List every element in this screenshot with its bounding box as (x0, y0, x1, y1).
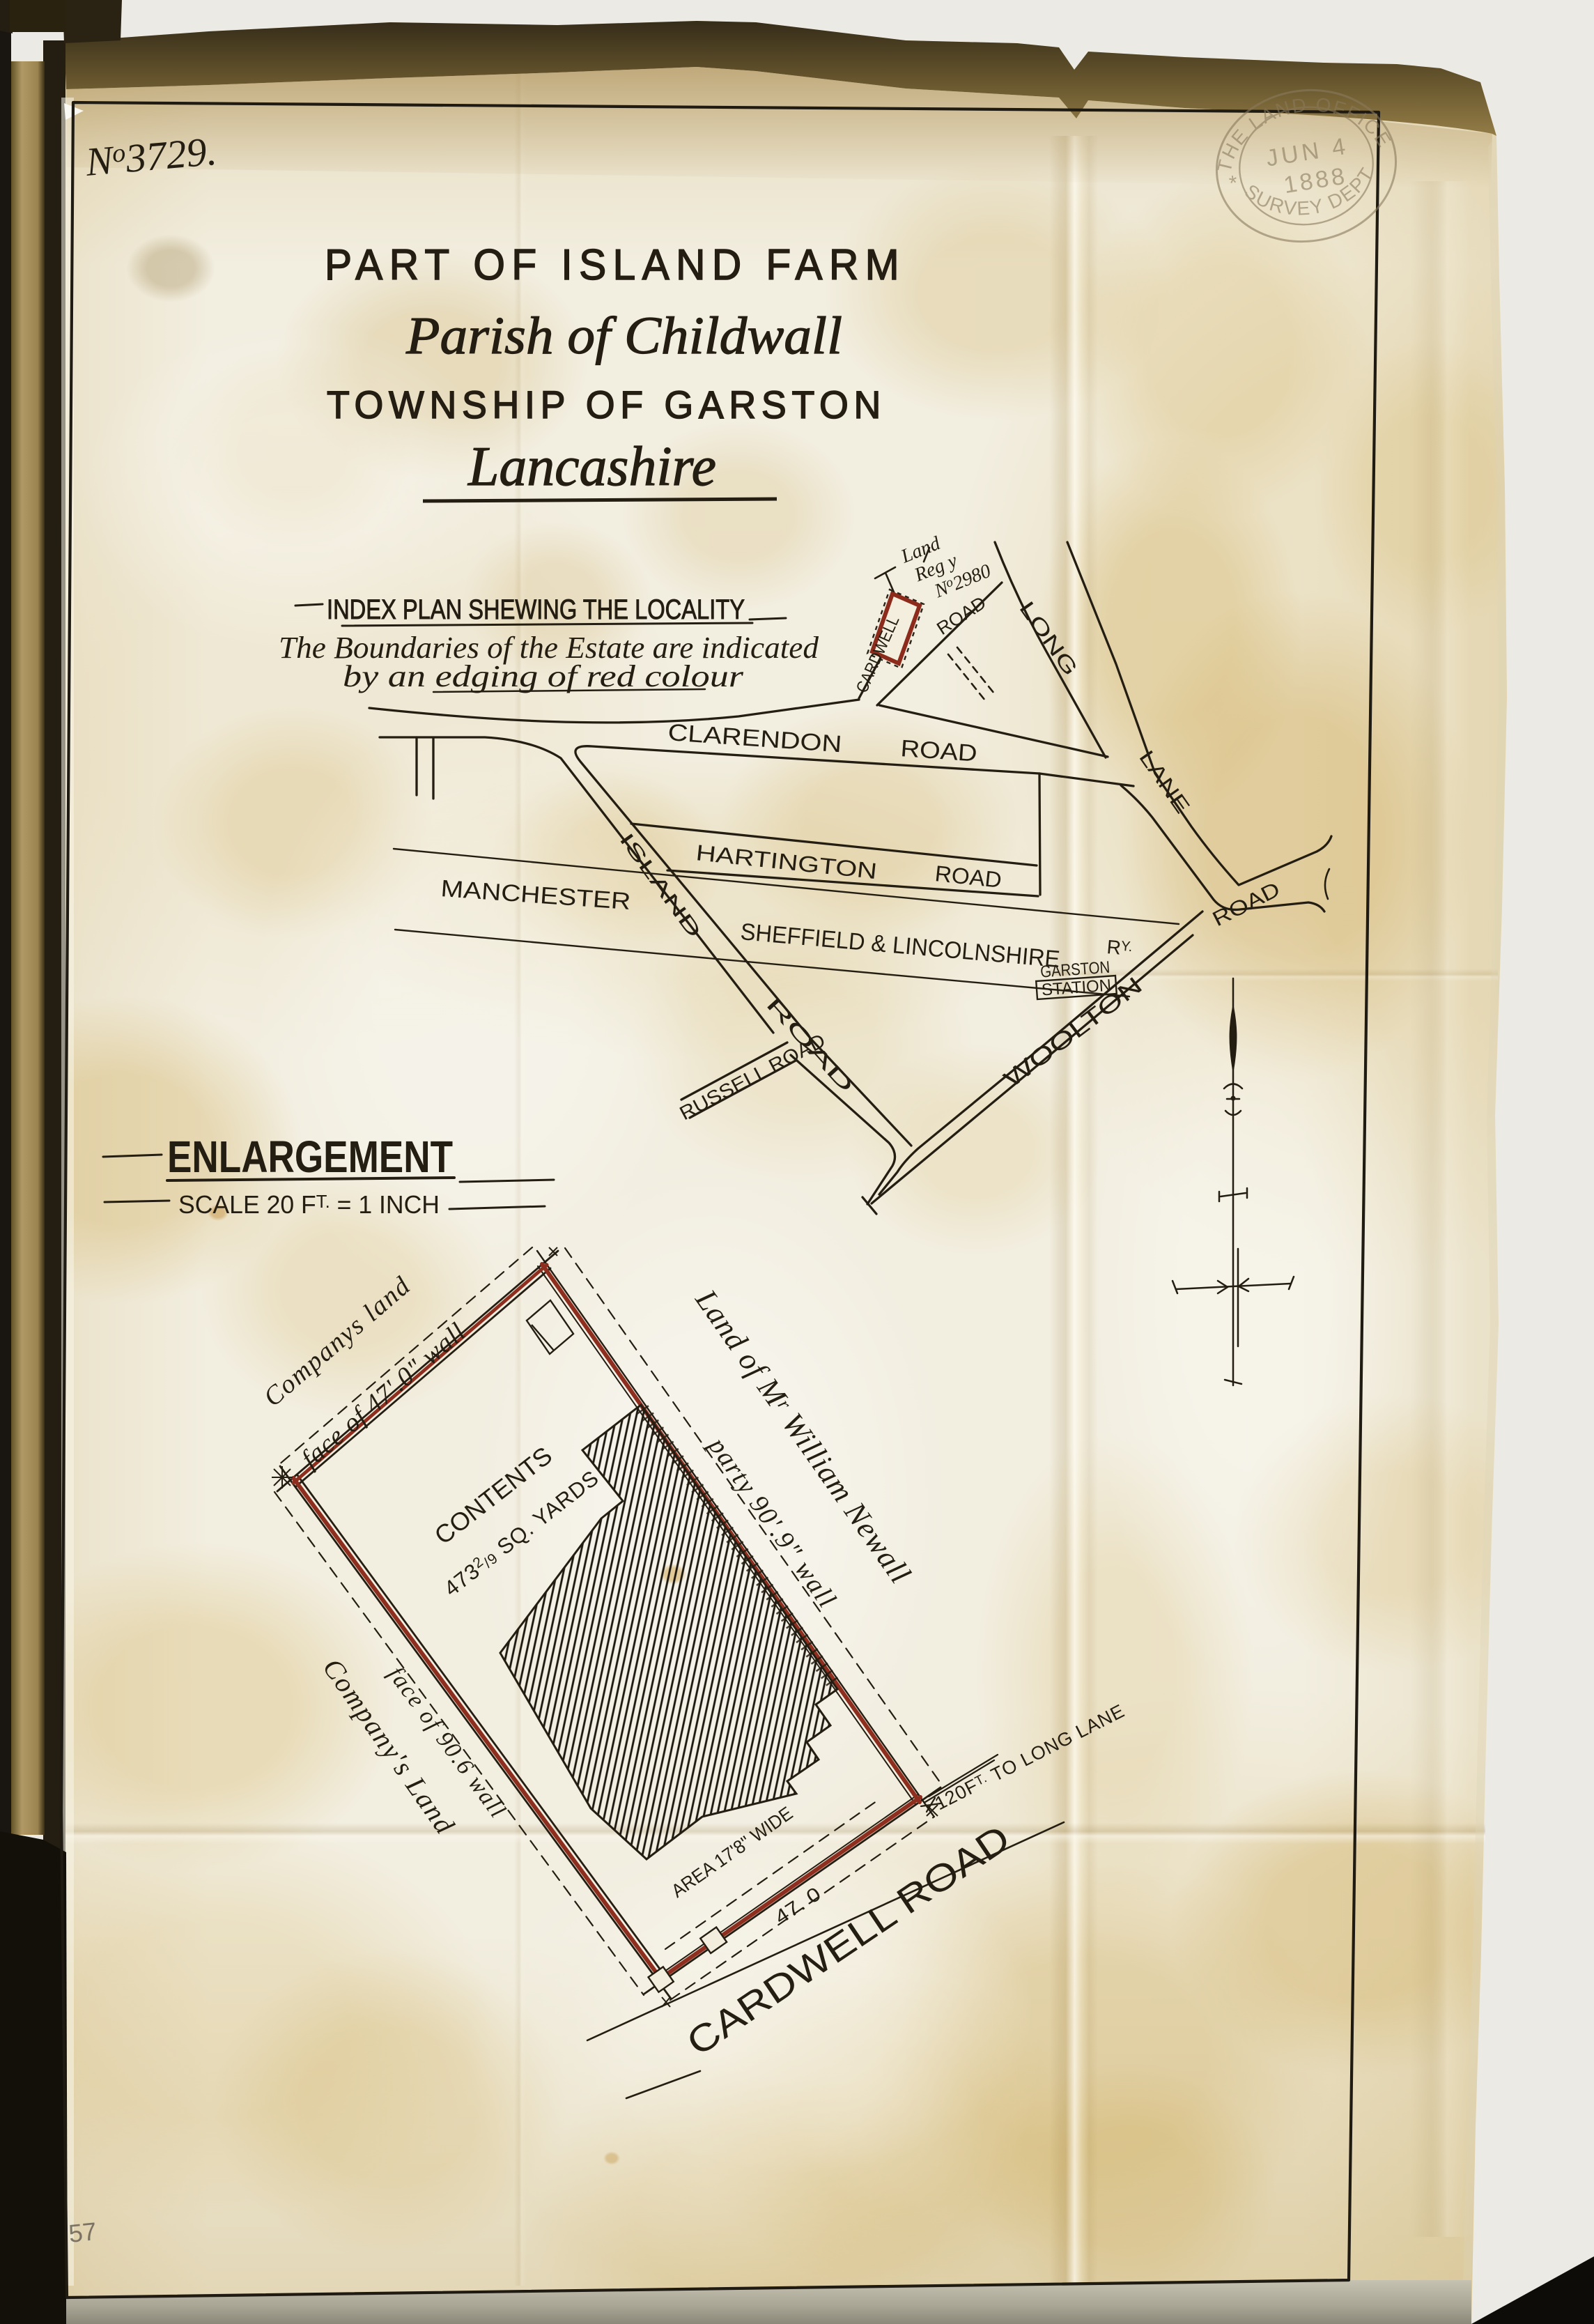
svg-text:ISLAND: ISLAND (615, 829, 706, 941)
svg-text:ROAD: ROAD (899, 735, 977, 767)
svg-text:PART OF ISLAND FARM: PART OF ISLAND FARM (325, 241, 906, 289)
svg-text:47. 0: 47. 0 (771, 1883, 824, 1928)
svg-text:TOWNSHIP OF GARSTON: TOWNSHIP OF GARSTON (327, 383, 886, 426)
svg-text:ROAD: ROAD (934, 861, 1003, 893)
svg-text:LONG: LONG (1014, 597, 1082, 680)
svg-text:*: * (1228, 171, 1239, 195)
svg-text:INDEX PLAN SHEWING THE LOCALIT: INDEX PLAN SHEWING THE LOCALITY (327, 594, 745, 625)
svg-text:MANCHESTER: MANCHESTER (440, 875, 631, 915)
svg-text:ROAD: ROAD (762, 993, 858, 1097)
svg-text:120FT. TO LONG LANE: 120FT. TO LONG LANE (931, 1700, 1128, 1815)
svg-text:RY.: RY. (1106, 936, 1133, 960)
svg-text:Lancashire: Lancashire (467, 436, 716, 498)
svg-text:by an edging of red colour: by an edging of red colour (343, 659, 744, 693)
svg-text:SCALE 20 FT. = 1 INCH: SCALE 20 FT. = 1 INCH (178, 1190, 440, 1219)
svg-text:Parish of Childwall: Parish of Childwall (405, 307, 842, 365)
svg-text:No3729.: No3729. (83, 128, 218, 185)
svg-text:ROAD: ROAD (1209, 878, 1284, 932)
svg-text:57: 57 (68, 2217, 98, 2248)
svg-text:ENLARGEMENT: ENLARGEMENT (167, 1132, 453, 1182)
